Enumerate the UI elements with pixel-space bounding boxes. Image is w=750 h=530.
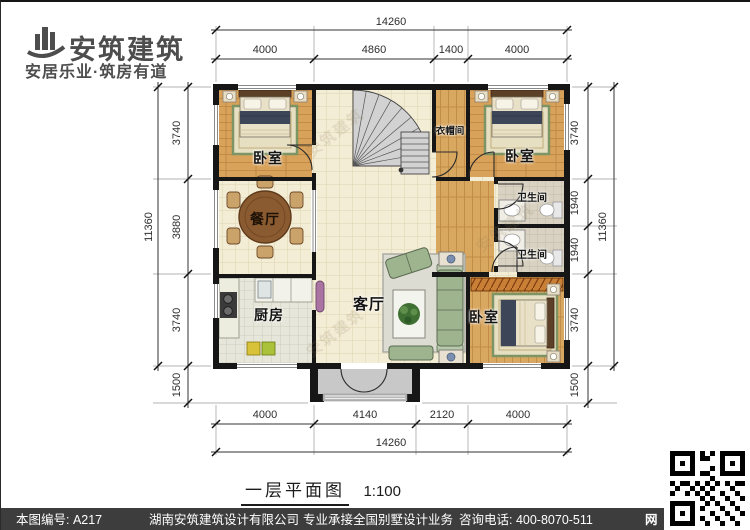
floor-plan-sheet: 安筑建筑 安居乐业·筑房有道 xyxy=(0,0,750,530)
qr-code xyxy=(1,2,750,530)
